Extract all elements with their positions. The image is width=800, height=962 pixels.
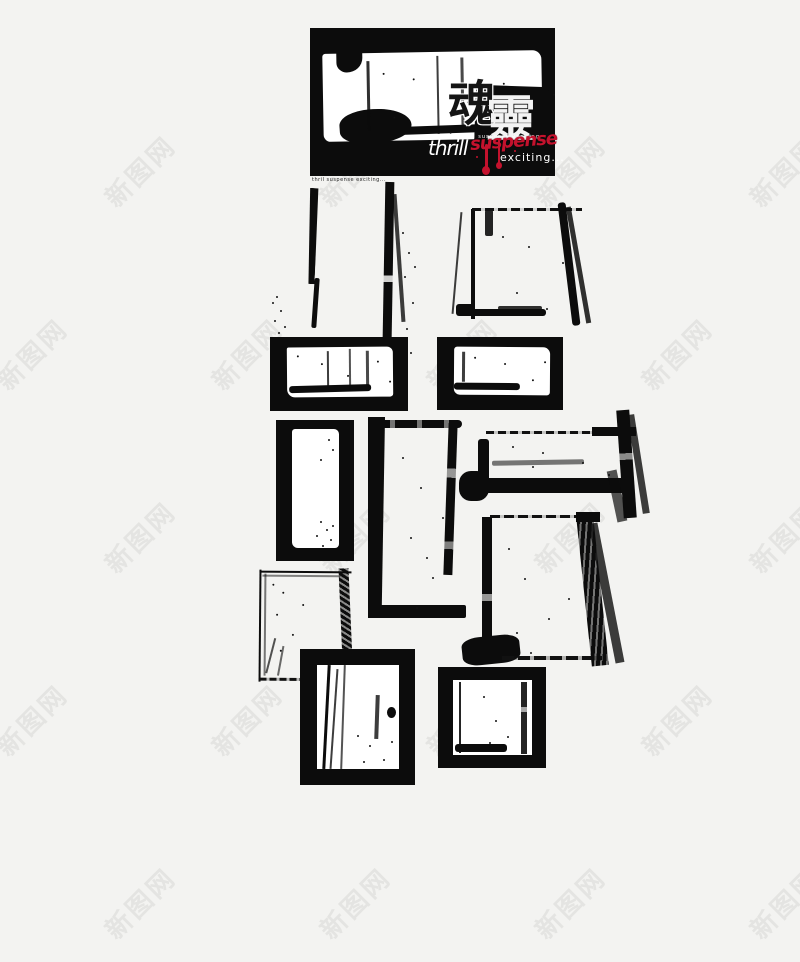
banner-thrill-text: thrill (428, 136, 467, 160)
scratch-line (374, 695, 380, 739)
brush-stroke (393, 194, 406, 322)
brush-stroke (311, 278, 319, 328)
ink-streak (455, 744, 507, 752)
ink-streak (462, 352, 465, 382)
frame-left-brush (368, 417, 385, 618)
frame-right-brush (443, 423, 457, 575)
solid-frame-tall (276, 420, 354, 561)
ink-specks (502, 236, 504, 238)
ink-streak (366, 61, 370, 131)
frame-corner-blob (456, 304, 474, 316)
watermark-text: 新图网 (725, 110, 800, 230)
frame-window (292, 429, 339, 548)
frame-window (317, 665, 399, 769)
frame-bottom-brush (374, 605, 466, 618)
watermark-text: 新图网 (0, 293, 92, 413)
frame-window (287, 347, 393, 398)
ink-specks (402, 457, 404, 459)
ink-streak (454, 383, 520, 390)
frame-left-blob (485, 210, 493, 236)
ink-blot (387, 707, 396, 718)
ink-blot (336, 48, 362, 72)
grunge-frame-top-right (452, 206, 588, 324)
ink-stroke-cluster-mid (374, 182, 414, 340)
ink-streak (492, 459, 584, 466)
ink-streak (366, 351, 369, 391)
title-banner: 魂 靈 thrill suspense exciting thrill susp… (310, 28, 555, 176)
watermark-text: 新图网 (0, 659, 92, 779)
ink-specks (276, 296, 278, 298)
ink-specks (483, 696, 485, 698)
frame-top-line (262, 575, 340, 578)
ink-specks (512, 446, 514, 448)
scratch-line (277, 646, 284, 676)
brush-stroke (303, 188, 319, 284)
stock-preview-page: { "page": { "background": "#f3f3f1", "in… (0, 0, 800, 800)
frame-bottom-edge (502, 656, 602, 660)
watermark-text: 新图网 (295, 842, 415, 962)
ink-specks (357, 735, 359, 737)
frame-right-brush (521, 682, 527, 754)
solid-frame-left (270, 337, 408, 411)
grunge-frame-wide (462, 412, 654, 516)
red-paint-drop (496, 162, 502, 169)
ink-specks (402, 232, 404, 234)
red-splatter (506, 146, 508, 148)
frame-window (453, 680, 532, 755)
solid-frame-right (437, 337, 563, 410)
watermark-text: 新图网 (617, 293, 737, 413)
frame-corner-blob (459, 471, 489, 501)
frame-bottom-brush (498, 306, 542, 310)
square-frame-bottom-right (438, 667, 546, 768)
watermark-text: 新图网 (80, 476, 200, 596)
frame-window (454, 347, 550, 396)
watermark-text: 新图网 (80, 842, 200, 962)
frame-left-line (264, 574, 267, 676)
frame-top-edge (486, 431, 608, 434)
frame-outer-scratch (452, 212, 463, 314)
watermark-text: 新图网 (510, 842, 630, 962)
ink-specks (272, 584, 274, 586)
grunge-frame-large (478, 508, 620, 666)
scratch-line (265, 638, 276, 673)
ink-stroke-cluster-left (300, 188, 334, 330)
ink-specks (328, 439, 330, 441)
ink-specks (474, 357, 476, 359)
ink-streak (436, 56, 439, 134)
frame-bottom-brush (464, 309, 546, 316)
frame-left-edge (471, 209, 475, 319)
ink-streak (289, 384, 371, 393)
watermark-text: 新图网 (725, 842, 800, 962)
ink-specks (297, 355, 299, 357)
watermark-text: 新图网 (80, 110, 200, 230)
brush-frame-middle (368, 417, 466, 618)
watermark-text: 新图网 (725, 476, 800, 596)
scratch-line (459, 682, 461, 753)
scratch-line (330, 669, 339, 769)
ink-specks (508, 548, 510, 550)
scratch-line (340, 665, 346, 769)
ink-streak (327, 351, 329, 389)
frame-left-line (259, 570, 262, 682)
ink-specks (383, 73, 385, 75)
ink-specks (320, 521, 322, 523)
banner-exciting-text: exciting... (500, 151, 565, 164)
ink-streak (349, 349, 351, 391)
mini-caption: thril suspense exciting... (312, 177, 386, 183)
frame-corner-blob (461, 633, 522, 667)
watermark-text: 新图网 (617, 659, 737, 779)
thick-frame-bottom (300, 649, 415, 785)
scratch-line (322, 665, 330, 769)
red-paint-drop (482, 166, 490, 175)
